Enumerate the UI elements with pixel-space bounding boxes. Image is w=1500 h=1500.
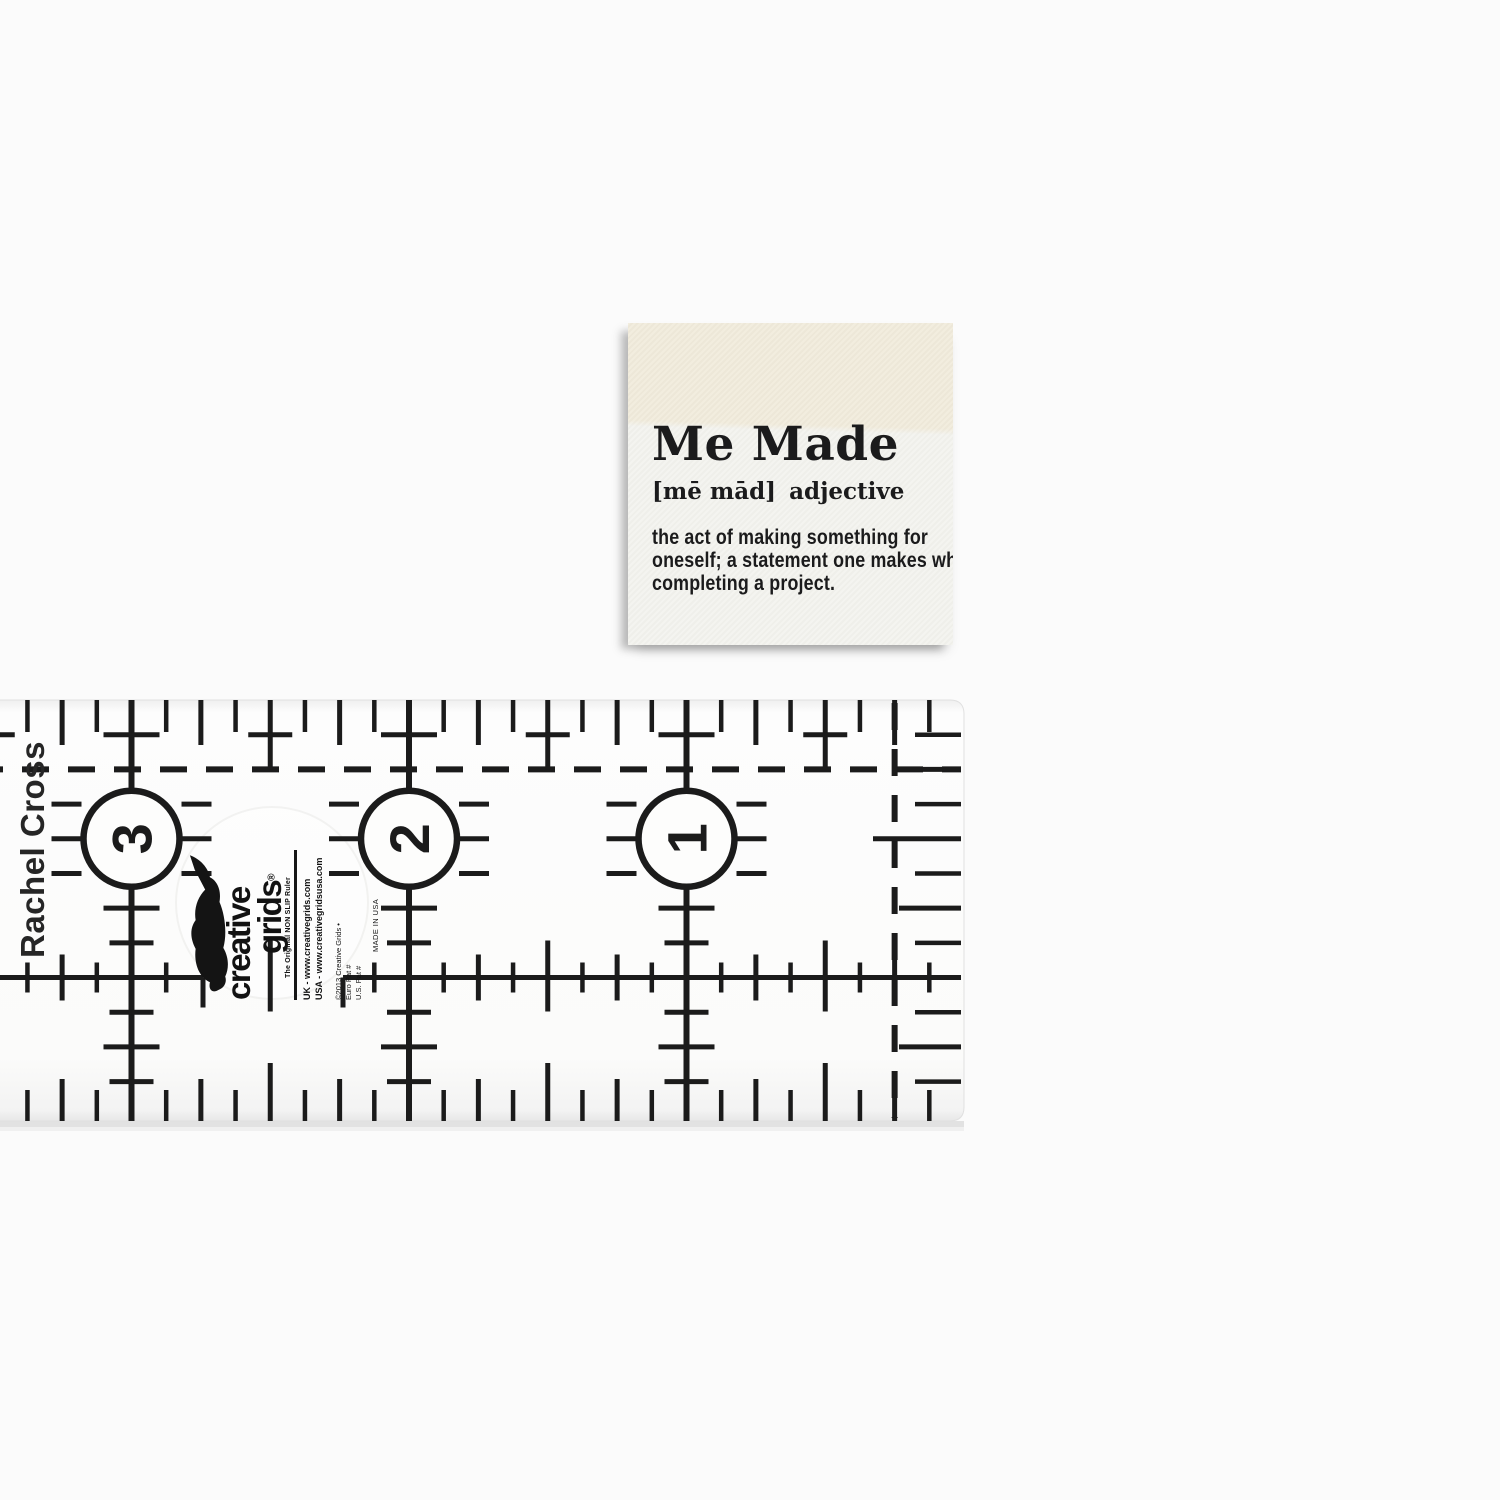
ruler-graphic: 321 (0, 0, 1500, 1500)
label-part-of-speech: adjective (789, 478, 904, 505)
label-definition: the act of making something for oneself;… (652, 526, 894, 595)
product-photo-canvas: 321 Rachel Cross creative grids® The Ori… (0, 0, 1500, 1500)
logo-patent-us: U.S. Pat # (354, 828, 364, 1000)
definition-line: oneself; a statement one makes when (652, 549, 894, 572)
registered-mark: ® (266, 873, 277, 880)
ruler-shadow (0, 1126, 964, 1131)
ruler-number: 2 (378, 823, 441, 854)
definition-line: completing a project. (652, 572, 894, 595)
me-made-label: Me Made [mē mād]adjective the act of mak… (628, 323, 953, 645)
rachel-cross-brand-text: Rachel Cross (14, 741, 52, 958)
logo-tagline: The Original NON SLIP Ruler (285, 828, 292, 978)
logo-url-usa: USA - www.creativegridsusa.com (313, 828, 325, 1000)
logo-rule (294, 850, 297, 1000)
creative-grids-logo: creative grids® The Original NON SLIP Ru… (188, 828, 380, 1000)
ruler-number: 1 (656, 823, 719, 854)
logo-word-grids: grids (251, 881, 288, 954)
logo-made-in: MADE IN USA (371, 828, 380, 952)
logo-copyright: ©2013 Creative Grids • (334, 828, 344, 1000)
logo-url-uk: UK - www.creativegrids.com (301, 828, 313, 1000)
ruler-number: 3 (101, 823, 164, 854)
logo-patent-eu: Euro Pat # (344, 828, 354, 1000)
logo-word-creative: creative (224, 828, 254, 1000)
definition-line: the act of making something for (652, 526, 894, 549)
label-pronunciation: [mē mād] (652, 478, 776, 505)
label-title: Me Made (652, 421, 937, 468)
